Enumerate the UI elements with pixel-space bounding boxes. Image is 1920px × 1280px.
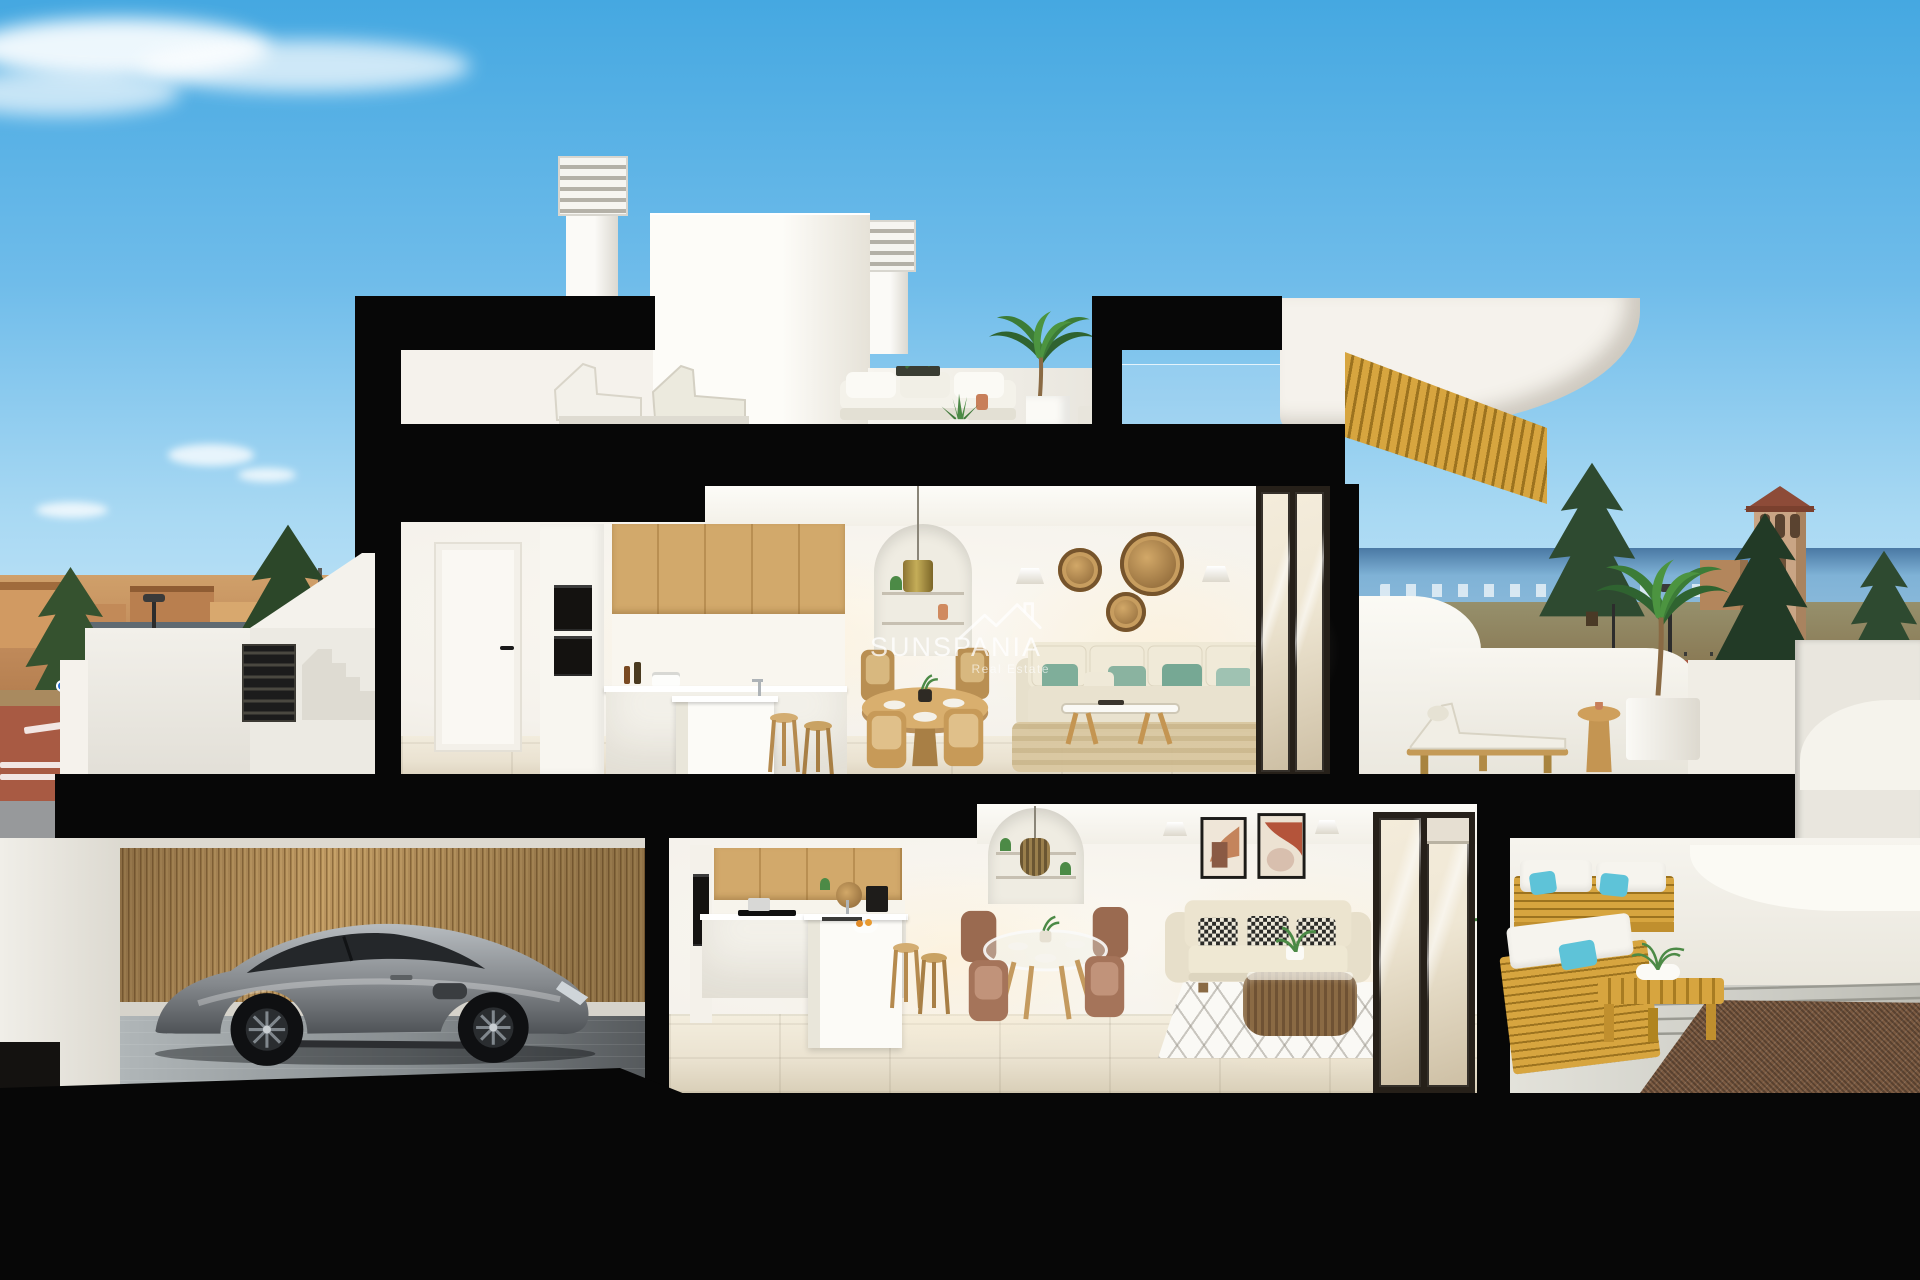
terrace-planter <box>1626 698 1700 760</box>
table-leg <box>1648 1008 1658 1042</box>
sports-car <box>136 880 604 1072</box>
pendant-cord <box>917 486 919 564</box>
cloud-small <box>238 468 296 482</box>
backsplash <box>612 614 845 686</box>
pendant-cord <box>1034 806 1036 840</box>
table-herbs <box>1630 942 1686 970</box>
shelf-plant <box>1060 862 1071 875</box>
faucet <box>758 680 761 696</box>
oven <box>554 585 592 631</box>
table-leg <box>1706 1004 1716 1040</box>
garage-beam <box>120 838 647 848</box>
orange <box>856 920 863 927</box>
island-top <box>672 696 778 702</box>
wicker-wall-basket <box>1120 532 1184 596</box>
teal-pillow <box>1599 873 1629 898</box>
cloud-small <box>36 502 108 518</box>
bottle <box>634 662 641 684</box>
shelf <box>882 592 964 595</box>
counter-plant <box>820 878 830 890</box>
render-canvas: SUNSPANIA Real Estate <box>0 0 1920 1280</box>
wall-art-frames <box>1200 812 1308 880</box>
pendant-lamp <box>903 560 933 592</box>
bar-stools <box>766 706 838 778</box>
sun-lounger <box>1385 688 1585 778</box>
terrace-side-table <box>1576 702 1622 778</box>
glass-pane <box>1427 818 1469 1087</box>
shelf <box>996 876 1076 879</box>
cloud-small <box>168 444 254 466</box>
cloud <box>140 40 470 92</box>
glass-pane <box>1261 492 1290 772</box>
chimney <box>868 264 908 354</box>
garage-partition-wall <box>645 838 669 1093</box>
terrace-palm-plant <box>1588 548 1738 713</box>
roof-planter <box>1026 396 1070 426</box>
glass-top <box>1247 972 1353 980</box>
rattan-coffee-table <box>1243 972 1357 1036</box>
shelf-plant <box>890 576 902 590</box>
lower-right-column <box>1477 806 1510 1093</box>
door-handle <box>500 646 514 650</box>
bottle <box>624 666 630 684</box>
rattan-pendant <box>1020 838 1050 876</box>
table-plant <box>1276 926 1316 952</box>
roller-shade <box>1427 818 1469 844</box>
aloe-plant <box>930 392 988 428</box>
coffee-machine <box>866 886 888 912</box>
watermark-brand: SUNSPANIA <box>870 632 1050 663</box>
pot <box>748 898 770 911</box>
glass-pane <box>1295 492 1324 772</box>
orange <box>865 919 872 926</box>
watermark-tagline: Real Estate <box>910 662 1050 676</box>
shelf-plant <box>1000 838 1011 851</box>
watermark: SUNSPANIA Real Estate <box>870 598 1050 682</box>
island-faucet <box>846 900 849 914</box>
upper-kitchen-cabinets <box>612 524 845 614</box>
cooking-pot <box>652 672 680 687</box>
upper-coffee-table <box>1058 698 1183 748</box>
lower-dining-set <box>955 903 1137 1031</box>
outdoor-table-top <box>1598 978 1724 1004</box>
upper-soffit <box>355 480 705 524</box>
exterior-staircase <box>240 545 375 778</box>
roof-lounge-chairs <box>545 350 760 426</box>
street-lamp-head <box>143 594 165 602</box>
oven <box>554 636 592 676</box>
glass-pane <box>1379 818 1421 1087</box>
faucet-spout <box>752 679 763 682</box>
chimney-louver-cap <box>558 156 628 216</box>
teal-pillow <box>1529 870 1558 895</box>
upper-ceiling <box>705 486 1328 526</box>
rattan-decor <box>836 882 862 908</box>
stair-wall-end <box>60 660 88 778</box>
table-leg <box>1604 1004 1614 1042</box>
foundation-edge <box>0 1060 700 1140</box>
mid-floor-slab <box>55 774 1795 838</box>
island-stools <box>888 938 952 1016</box>
roof-slab <box>385 424 1345 486</box>
kitchen-island <box>676 700 774 776</box>
wicker-wall-basket <box>1058 548 1102 592</box>
